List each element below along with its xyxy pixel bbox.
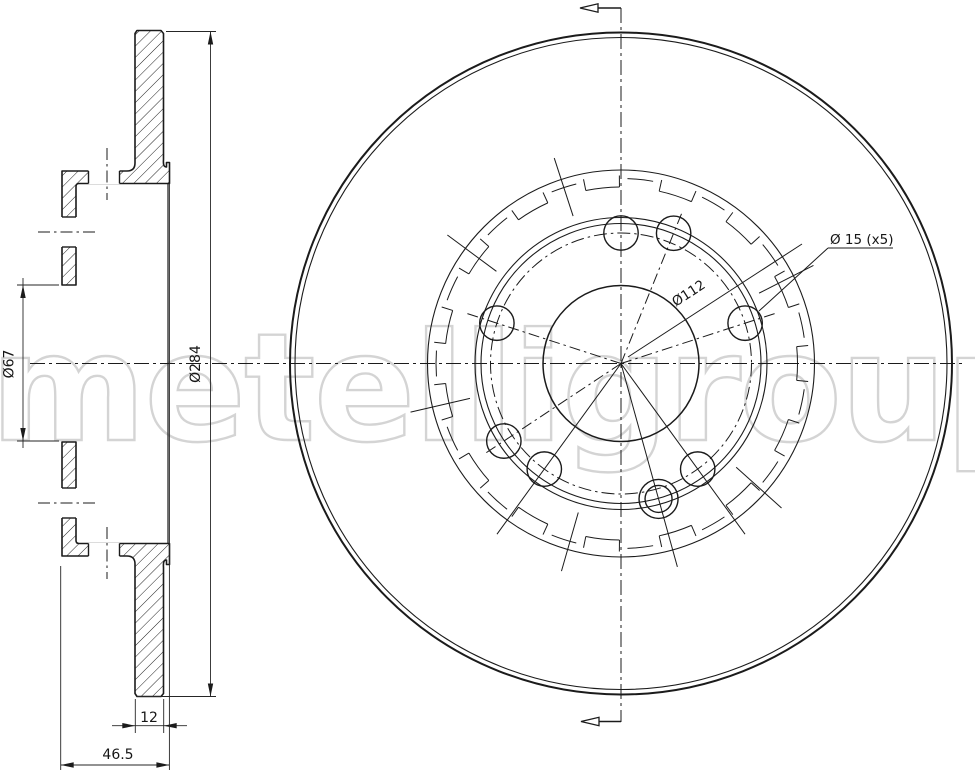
section-hole-gap	[89, 543, 120, 558]
dim-thickness-label: 12	[140, 710, 158, 726]
dim-outer-diameter-label: Ø284	[188, 345, 204, 383]
dim-bolt-holes-label: Ø 15 (x5)	[830, 232, 894, 248]
watermark-text: metelligroup	[0, 302, 975, 476]
dim-bore-diameter-label: Ø67	[2, 350, 18, 379]
brake-disc-technical-drawing: metelligroup Ø284 Ø67 12 46.5 Ø112 Ø 15 …	[0, 0, 975, 771]
section-hole-gap	[89, 170, 120, 185]
drawing-page: metelligroup Ø284 Ø67 12 46.5 Ø112 Ø 15 …	[0, 0, 975, 771]
dim-overall-height-label: 46.5	[102, 747, 133, 763]
